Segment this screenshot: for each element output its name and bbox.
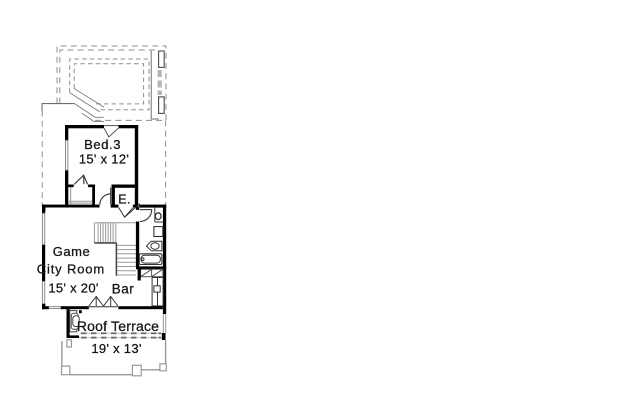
svg-text:Roof Terrace: Roof Terrace — [77, 318, 159, 334]
svg-text:19' x 13': 19' x 13' — [91, 341, 141, 356]
svg-text:Bar: Bar — [112, 282, 135, 297]
svg-text:15' x 20': 15' x 20' — [48, 281, 98, 296]
svg-text:E.: E. — [118, 193, 131, 207]
svg-text:Bed.3: Bed.3 — [84, 137, 121, 152]
svg-text:City Room: City Room — [37, 261, 105, 276]
svg-text:Game: Game — [53, 244, 91, 259]
svg-text:15' x 12': 15' x 12' — [79, 151, 129, 166]
